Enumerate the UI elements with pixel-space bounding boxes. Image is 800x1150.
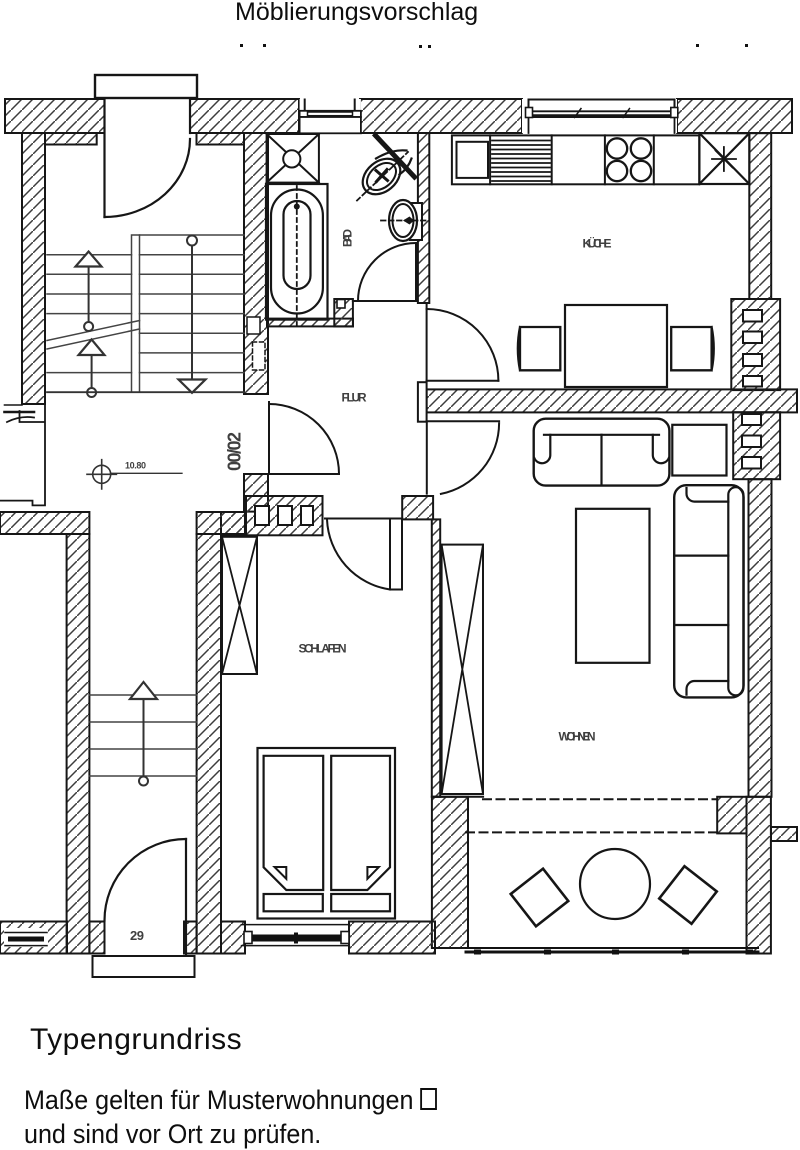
svg-text:FLUR: FLUR [342, 391, 367, 405]
svg-text:10.80: 10.80 [125, 461, 146, 471]
svg-text:BAD: BAD [341, 229, 355, 247]
svg-text:00/02: 00/02 [225, 432, 245, 471]
svg-text:29: 29 [130, 928, 144, 943]
svg-text:SCHLAFEN: SCHLAFEN [299, 642, 347, 656]
svg-text:WOHNEN: WOHNEN [559, 730, 596, 744]
svg-text:KÜCHE: KÜCHE [583, 236, 612, 251]
